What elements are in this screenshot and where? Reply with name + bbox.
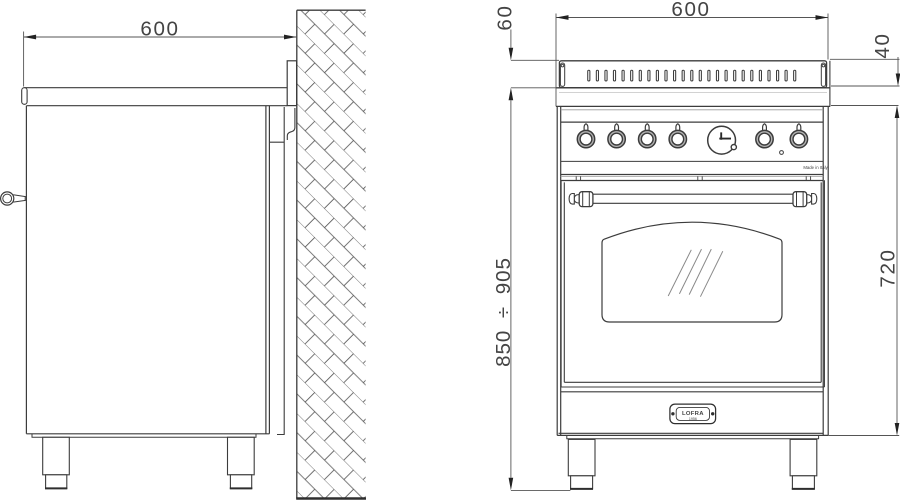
svg-text:600: 600 (671, 0, 710, 21)
svg-text:600: 600 (140, 18, 179, 41)
svg-text:40: 40 (871, 32, 894, 58)
svg-text:720: 720 (877, 248, 900, 287)
svg-text:60: 60 (494, 4, 517, 30)
svg-text:1956: 1956 (689, 417, 697, 421)
svg-text:Made in Italy: Made in Italy (803, 165, 828, 170)
svg-text:850 ÷ 905: 850 ÷ 905 (492, 257, 515, 367)
